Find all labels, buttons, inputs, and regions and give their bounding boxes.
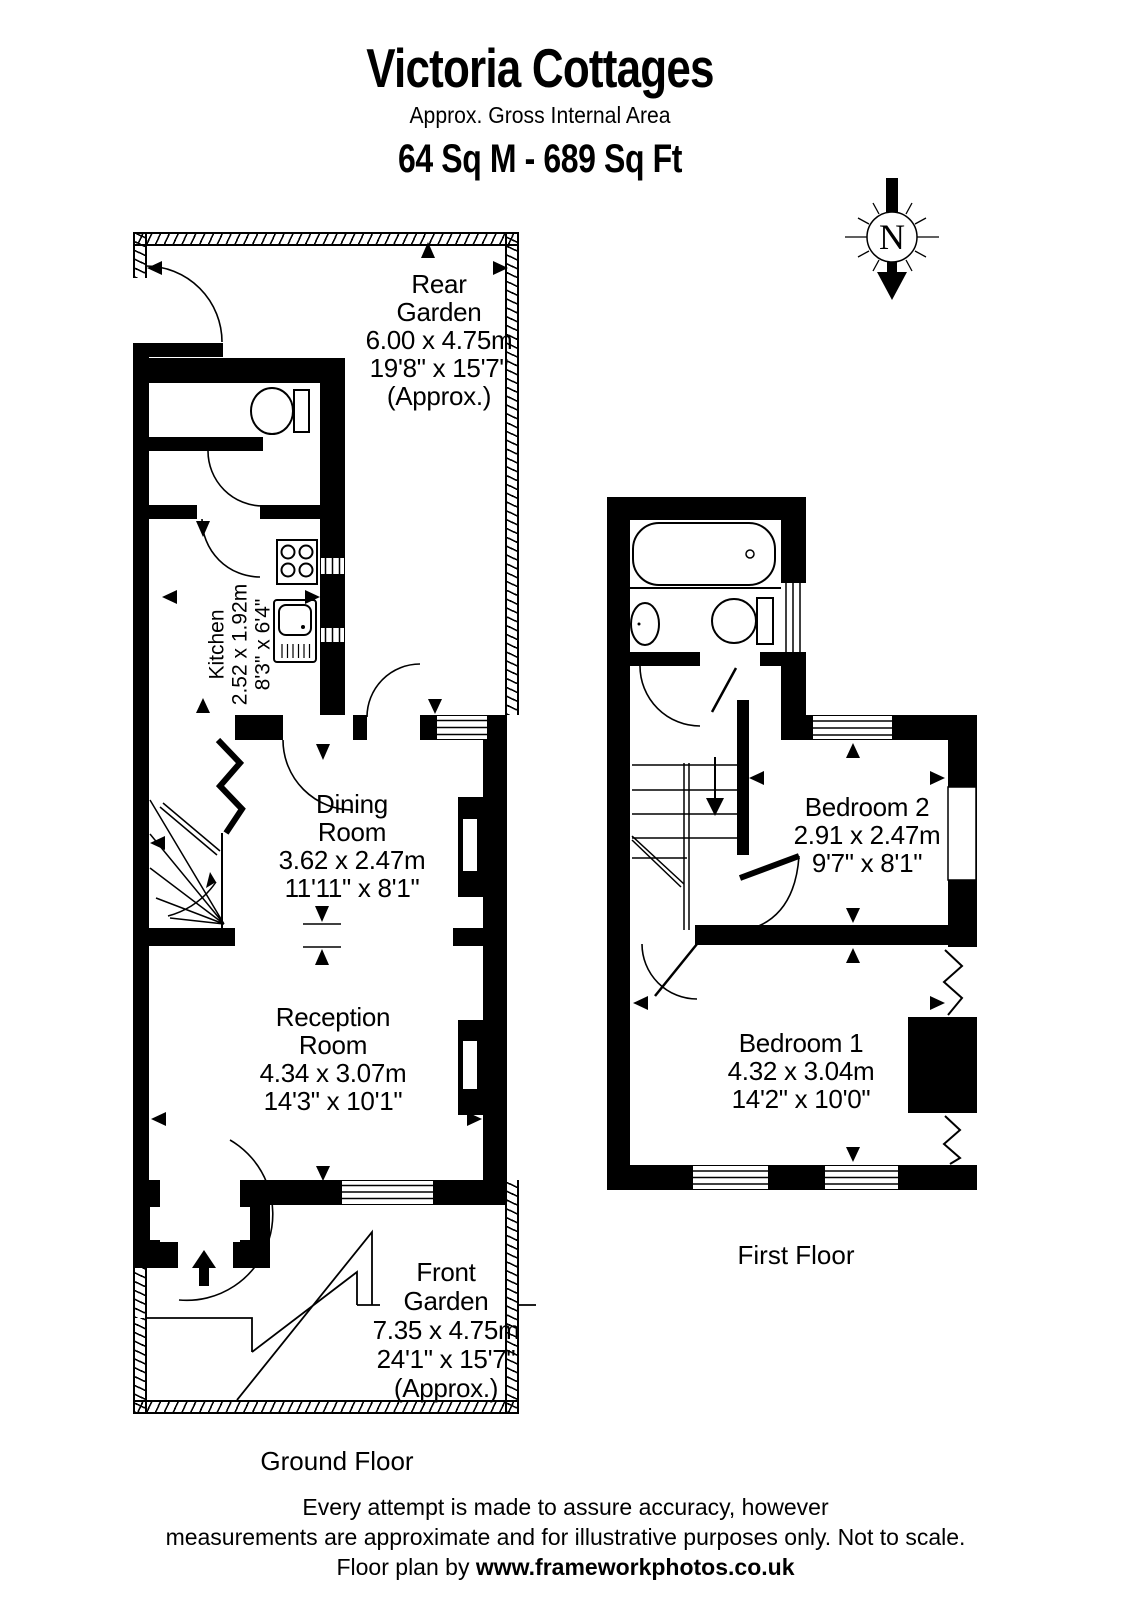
credit-prefix: Floor plan by [336,1554,475,1580]
compass-north-label: N [879,217,905,257]
first-floor-label: First Floor [696,1240,896,1271]
room-label-kitchen: Kitchen 2.52 x 1.92m 8'3" x 6'4" [206,555,275,735]
basin-icon [631,603,659,645]
room-label-dining-room: Dining Room 3.62 x 2.47m 11'11" x 8'1" [252,790,452,902]
sink-icon [274,600,316,662]
room-label-bedroom-2: Bedroom 2 2.91 x 2.47m 9'7" x 8'1" [747,793,987,877]
credit-url[interactable]: www.frameworkphotos.co.uk [476,1554,795,1580]
floorplan-page: { "header": { "title": "Victoria Cottage… [0,0,1131,1600]
ground-floor-stairs [150,740,242,928]
wc-toilet-icon [251,388,309,434]
bath-icon [633,523,775,585]
fireplace-insets [462,818,478,1090]
stairs-up-arrowhead [206,872,216,888]
room-label-front-garden: Front Garden 7.35 x 4.75m 24'1" x 15'7" … [336,1258,556,1403]
room-label-reception-room: Reception Room 4.34 x 3.07m 14'3" x 10'1… [233,1003,433,1115]
room-opening-marker [303,906,341,965]
footer-disclaimer: Every attempt is made to assure accuracy… [0,1492,1131,1582]
toilet-icon [712,598,773,644]
first-floor-stairs [632,757,737,930]
room-label-bedroom-1: Bedroom 1 4.32 x 3.04m 14'2" x 10'0" [681,1029,921,1113]
disclaimer-line-2: measurements are approximate and for ill… [0,1522,1131,1552]
credit-line: Floor plan by www.frameworkphotos.co.uk [0,1552,1131,1582]
ground-floor-label: Ground Floor [237,1446,437,1477]
compass: N [845,178,939,300]
disclaimer-line-1: Every attempt is made to assure accuracy… [0,1492,1131,1522]
room-label-rear-garden: Rear Garden 6.00 x 4.75m 19'8" x 15'7" (… [329,270,549,410]
hob-icon [277,540,317,584]
